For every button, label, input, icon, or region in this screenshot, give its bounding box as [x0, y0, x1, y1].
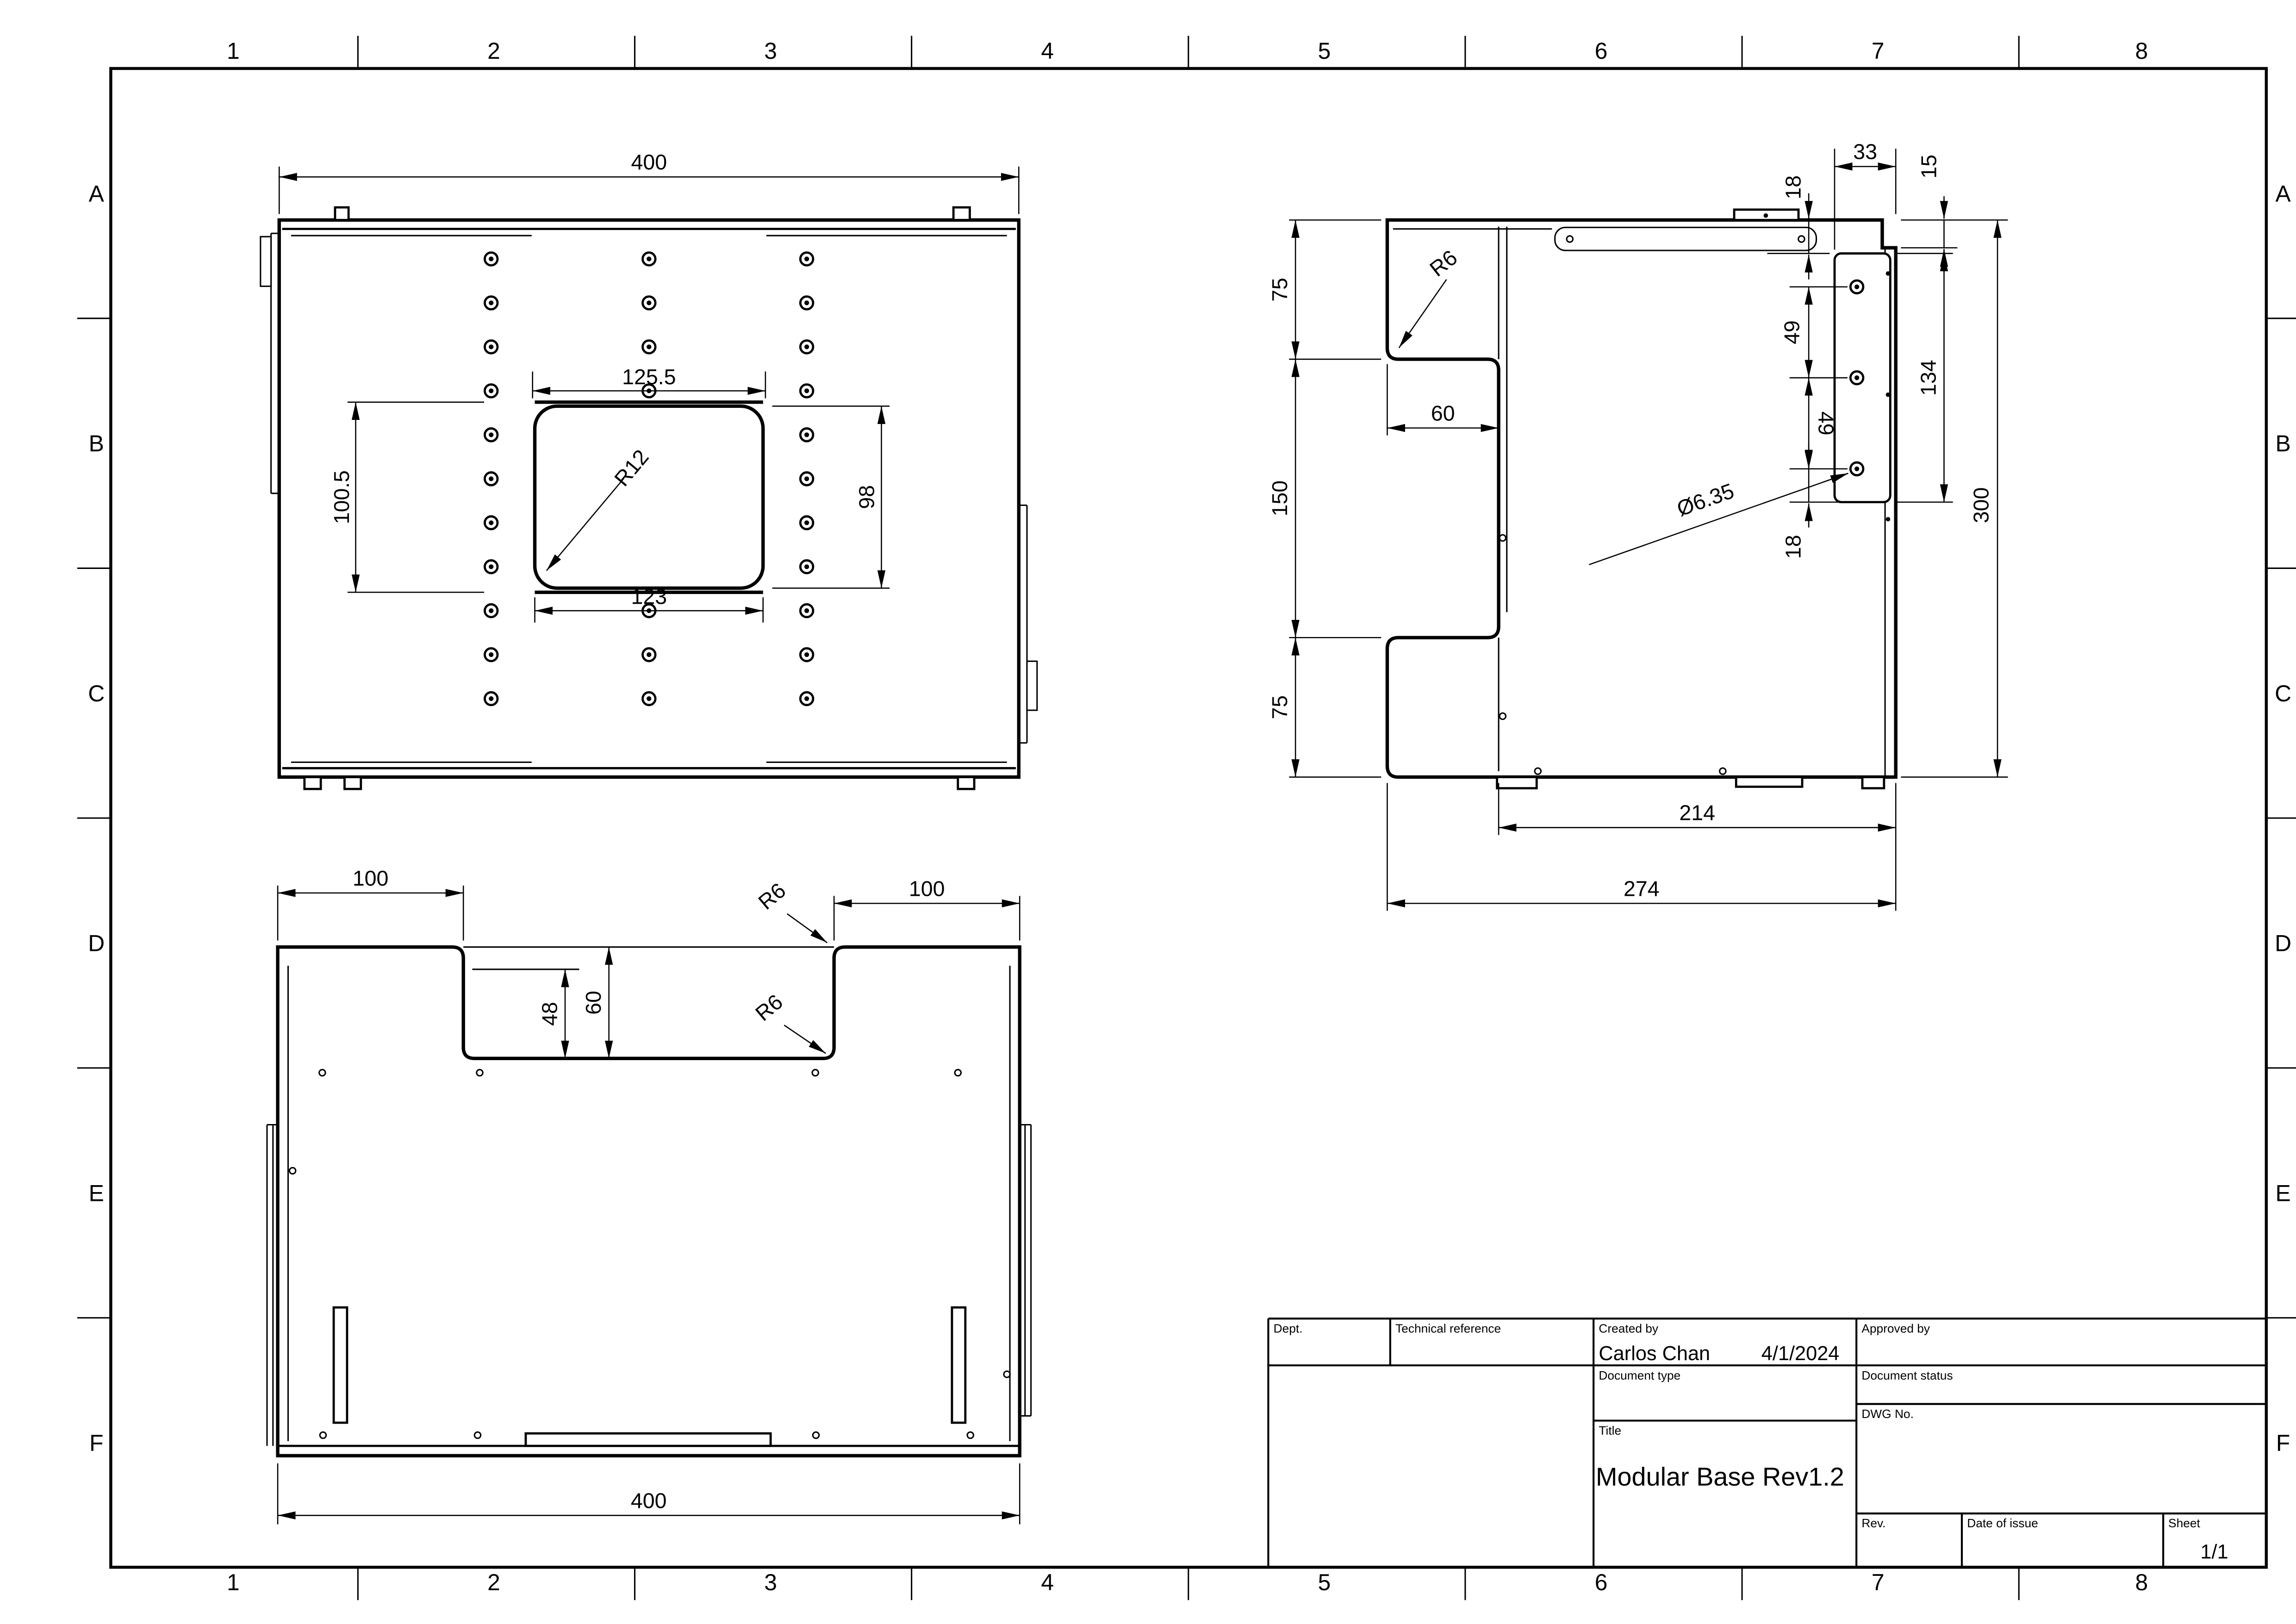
extension-lines: [278, 886, 1020, 1524]
dim-side-notch-depth: 60: [1431, 401, 1455, 425]
dim-top-corner-radius: R12: [610, 445, 653, 491]
dim-bottom-right-shoulder: 100: [909, 876, 945, 900]
dept-label: Dept.: [1274, 1322, 1303, 1336]
sheet-label: Sheet: [2168, 1516, 2200, 1530]
dim-side-overall-height: 300: [1969, 487, 1993, 524]
zone-row-label: B: [2275, 431, 2290, 456]
dim-top-overall-width: 400: [631, 150, 667, 174]
zone-col-label: 1: [227, 38, 240, 64]
zone-column-labels-bottom: 1 2 3 4 5 6 7 8: [227, 1569, 2148, 1595]
zone-col-label: 2: [487, 1569, 500, 1595]
dim-bottom-notch-inner-height: 48: [537, 1002, 561, 1026]
zone-col-label: 6: [1595, 38, 1608, 64]
date-of-issue-label: Date of issue: [1967, 1516, 2038, 1530]
zone-col-label: 7: [1872, 38, 1885, 64]
dim-bottom-overall-width: 400: [631, 1488, 667, 1512]
dim-side-lower-height: 75: [1268, 695, 1292, 719]
title-block: Dept. Technical reference Created by App…: [1268, 1318, 2266, 1567]
zone-col-label: 3: [764, 38, 777, 64]
bottom-view: 100 100 48 60 R6 R6 400: [267, 866, 1031, 1524]
zone-row-label: C: [88, 681, 105, 706]
side-view-bracket: [1835, 253, 1890, 521]
dim-side-step-height: 15: [1916, 155, 1941, 179]
dim-side-upper-height: 75: [1268, 278, 1292, 302]
zone-col-label: 3: [764, 1569, 777, 1595]
zone-row-label: F: [89, 1430, 103, 1456]
tab-hole: [1764, 213, 1768, 218]
bottom-view-side-flanges: [267, 1124, 1031, 1446]
bottom-view-dimensions: 100 100 48 60 R6 R6 400: [278, 866, 1020, 1524]
zone-row-label: B: [89, 431, 104, 456]
dim-side-notch-radius: R6: [1425, 245, 1462, 281]
created-by-label: Created by: [1599, 1322, 1658, 1336]
zone-col-label: 5: [1318, 1569, 1331, 1595]
zone-col-label: 1: [227, 1569, 240, 1595]
bottom-center-tab: [526, 1433, 771, 1446]
top-view-opening: [535, 402, 763, 593]
zone-col-label: 2: [487, 38, 500, 64]
zone-col-label: 5: [1318, 38, 1331, 64]
bottom-view-inner-lines: [288, 947, 1010, 1441]
top-view-inner-lines: [291, 236, 1007, 762]
dim-bottom-notch-depth: 60: [581, 991, 605, 1015]
border-frame: [111, 69, 2266, 1567]
dim-top-hole-pitch: 125.5: [622, 365, 676, 389]
dim-side-base-width: 214: [1679, 801, 1715, 825]
dim-side-overall-width: 274: [1624, 876, 1660, 900]
zone-col-label: 8: [2135, 38, 2148, 64]
zone-row-label: F: [2276, 1430, 2290, 1456]
side-view-outline: [1387, 220, 1896, 777]
bottom-view-small-holes: [289, 1069, 1010, 1438]
dim-side-hole-pitch-lower: 49: [1814, 412, 1838, 436]
zone-column-labels-top: 1 2 3 4 5 6 7 8: [227, 38, 2148, 64]
approved-by-label: Approved by: [1861, 1322, 1930, 1336]
dim-side-bracket-height: 134: [1916, 360, 1941, 396]
zone-col-label: 8: [2135, 1569, 2148, 1595]
sheet-number-value: 1/1: [2200, 1541, 2228, 1563]
dim-side-middle-height: 150: [1268, 481, 1292, 517]
zone-row-label: D: [2275, 931, 2291, 956]
dim-bottom-left-shoulder: 100: [353, 866, 389, 890]
zone-row-label: E: [89, 1180, 104, 1206]
top-view: 400 125.5 100.5 98 123 R12: [261, 150, 1037, 789]
document-status-label: Document status: [1861, 1368, 1953, 1382]
dim-top-opening-width: 123: [631, 585, 667, 609]
zone-row-label: D: [88, 931, 105, 956]
dim-side-hole-pitch-upper: 49: [1780, 320, 1804, 344]
title-value: Modular Base Rev1.2: [1596, 1462, 1844, 1491]
bottom-view-outline: [278, 947, 1020, 1456]
side-view-small-holes: [1500, 535, 1726, 774]
dim-bottom-radius-upper: R6: [753, 878, 790, 914]
zone-col-label: 7: [1872, 1569, 1885, 1595]
dim-top-opening-height-outer: 100.5: [330, 470, 354, 524]
zone-row-label: A: [2275, 181, 2291, 206]
rectangular-cutout: [535, 406, 763, 588]
bottom-slot: [334, 1307, 347, 1423]
dim-top-opening-height: 98: [854, 485, 878, 509]
zone-row-label: C: [2275, 681, 2291, 706]
dim-side-bracket-width: 33: [1853, 140, 1877, 164]
title-label: Title: [1599, 1424, 1621, 1437]
rev-label: Rev.: [1861, 1516, 1885, 1530]
zone-col-label: 4: [1041, 1569, 1054, 1595]
top-flange-slot: [1555, 227, 1817, 250]
dim-bottom-radius-lower: R6: [751, 990, 787, 1026]
dim-side-hole-edge-offset: 18: [1781, 535, 1805, 559]
dim-side-hole-diameter: Ø6.35: [1674, 479, 1737, 521]
bottom-slot: [952, 1307, 965, 1423]
side-view: 75 150 75 60 R6 18 33 15 49 49 134 300 Ø…: [1268, 140, 2008, 911]
extension-lines: [1289, 149, 2008, 911]
drawing-sheet: 1 2 3 4 5 6 7 8 1 2 3 4 5 6 7 8 A B C D …: [0, 0, 2296, 1624]
zone-col-label: 6: [1595, 1569, 1608, 1595]
created-date-value: 4/1/2024: [1761, 1343, 1840, 1365]
created-by-value: Carlos Chan: [1599, 1343, 1710, 1365]
dwg-no-label: DWG No.: [1861, 1407, 1913, 1421]
dim-side-flange-offset: 18: [1781, 175, 1805, 200]
zone-col-label: 4: [1041, 38, 1054, 64]
zone-row-label: E: [2275, 1180, 2290, 1206]
document-type-label: Document type: [1599, 1368, 1680, 1382]
technical-reference-label: Technical reference: [1395, 1322, 1501, 1336]
zone-row-label: A: [89, 181, 105, 206]
